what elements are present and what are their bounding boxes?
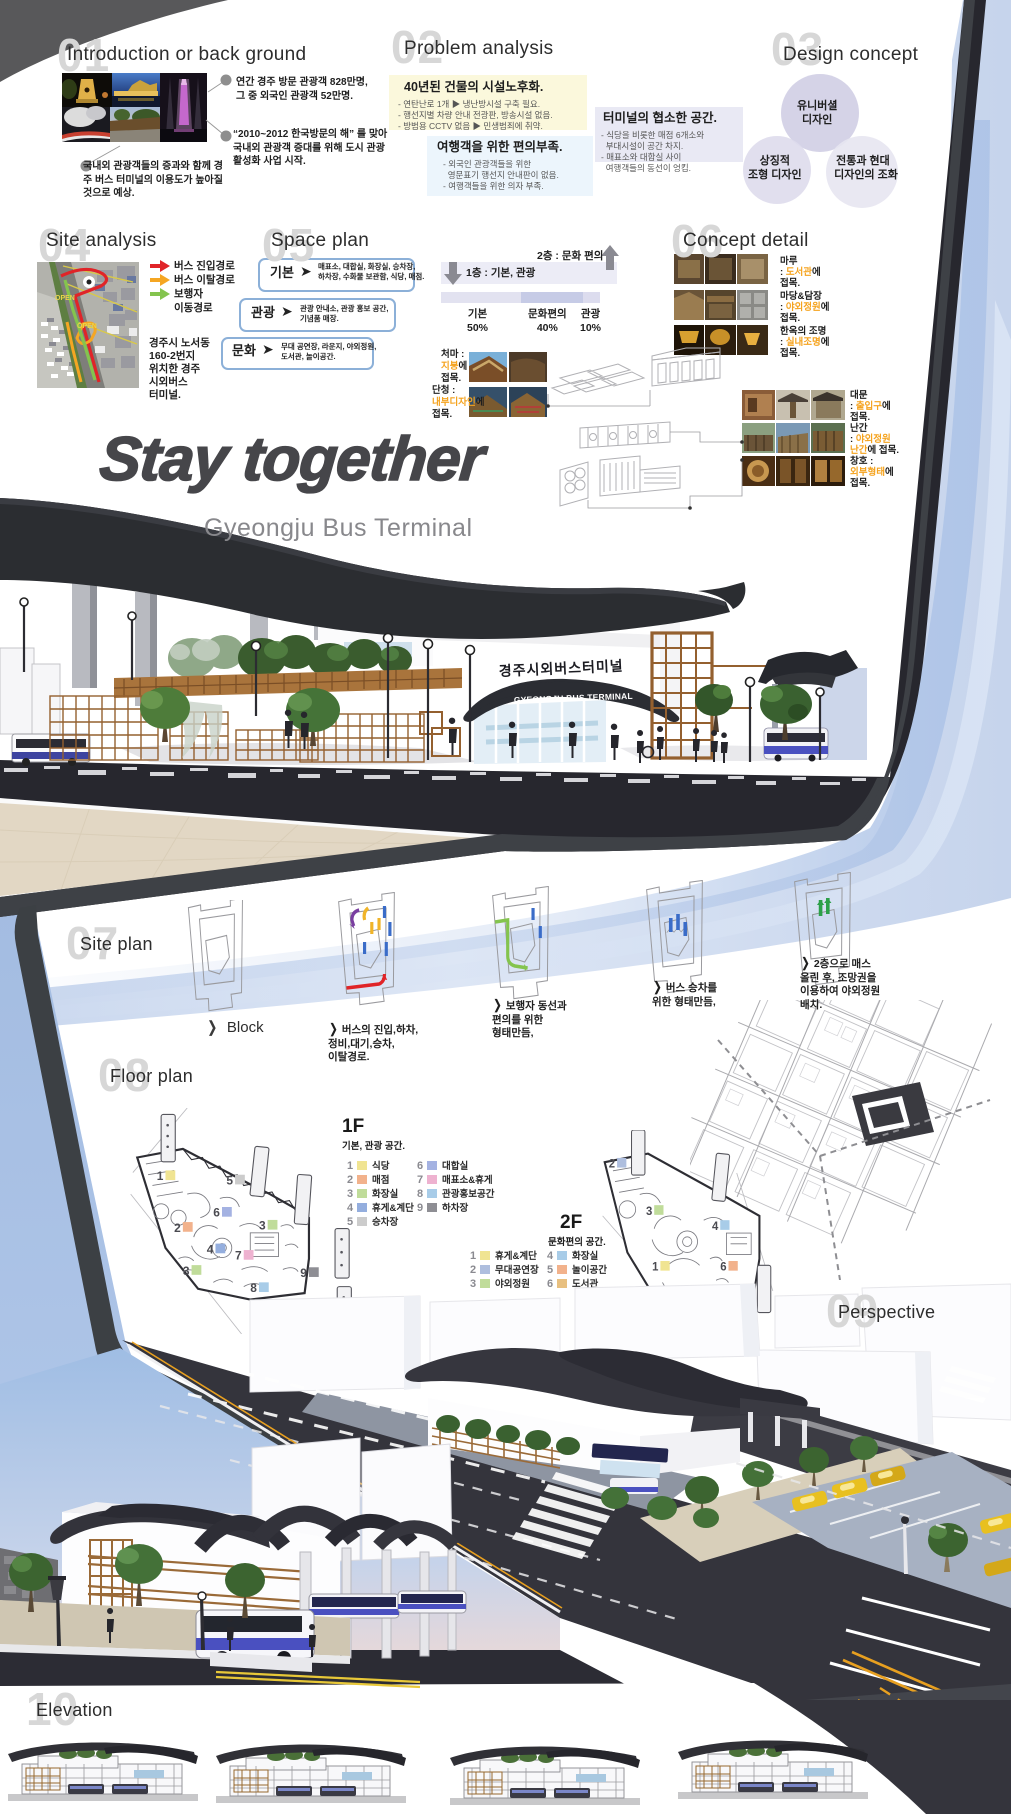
svg-text:1: 1 [470,1250,476,1262]
svg-text:4: 4 [207,1242,214,1256]
svg-text:관광홍보공간: 관광홍보공간 [442,1188,495,1200]
svg-text:5: 5 [547,1264,553,1276]
svg-text:7: 7 [417,1174,423,1186]
svg-text:4: 4 [347,1202,354,1214]
svg-text:7: 7 [235,1249,242,1263]
svg-text:화장실: 화장실 [572,1250,598,1262]
svg-text:3: 3 [183,1264,190,1278]
svg-text:무대공연장: 무대공연장 [495,1264,539,1276]
svg-text:1: 1 [157,1169,164,1183]
svg-text:OPEN: OPEN [55,295,75,302]
svg-text:휴게&계단: 휴게&계단 [372,1202,414,1214]
svg-text:3: 3 [646,1206,653,1218]
svg-text:2: 2 [470,1264,476,1276]
svg-text:5: 5 [347,1216,353,1228]
svg-text:5: 5 [226,1173,233,1187]
svg-text:4: 4 [547,1250,554,1262]
svg-text:OPEN: OPEN [77,323,97,330]
svg-text:6: 6 [720,1261,727,1273]
svg-text:대합실: 대합실 [442,1160,468,1172]
svg-text:2: 2 [609,1158,615,1170]
svg-text:매점: 매점 [372,1174,389,1186]
svg-text:승차장: 승차장 [372,1216,398,1228]
svg-text:3: 3 [347,1188,353,1200]
svg-text:6: 6 [417,1160,423,1172]
svg-text:9: 9 [417,1202,423,1214]
svg-text:6: 6 [213,1206,220,1220]
svg-text:하차장: 하차장 [442,1202,468,1214]
svg-text:놀이공간: 놀이공간 [572,1264,607,1276]
svg-text:식당: 식당 [372,1160,390,1172]
svg-text:8: 8 [417,1188,423,1200]
svg-text:9: 9 [300,1266,307,1280]
svg-text:2: 2 [174,1221,181,1235]
svg-text:휴게&계단: 휴게&계단 [495,1250,537,1262]
svg-text:2: 2 [347,1174,353,1186]
svg-text:매표소&휴게: 매표소&휴게 [442,1174,493,1186]
svg-text:화장실: 화장실 [372,1188,398,1200]
svg-text:1: 1 [347,1160,353,1172]
svg-text:4: 4 [712,1221,719,1233]
svg-text:3: 3 [259,1219,266,1233]
